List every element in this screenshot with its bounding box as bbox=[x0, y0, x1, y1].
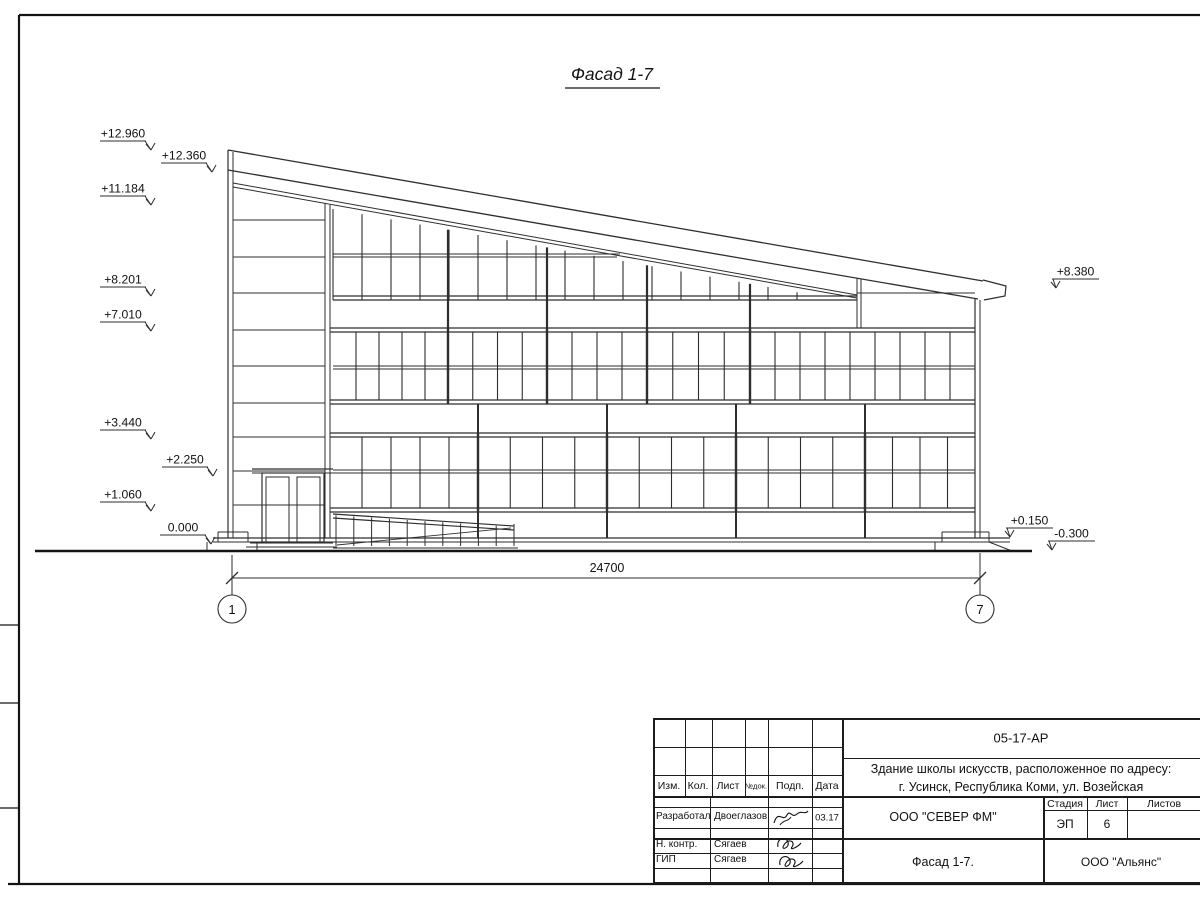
stage-value: ЭП bbox=[1056, 817, 1073, 831]
line bbox=[228, 150, 983, 281]
axis-label: 7 bbox=[976, 602, 983, 617]
name-developer: Двоеглазов bbox=[714, 811, 767, 822]
elevation-arrow bbox=[151, 198, 155, 205]
rev-col-data: Дата bbox=[815, 780, 838, 792]
elevation-value: 0.000 bbox=[168, 521, 199, 535]
axis-label: 1 bbox=[228, 602, 235, 617]
project-description-1: Здание школы искусств, расположенное по … bbox=[871, 762, 1172, 776]
stamp-line bbox=[768, 718, 769, 884]
stamp-line bbox=[712, 718, 713, 796]
elevation-arrow bbox=[151, 143, 155, 150]
company-name: ООО "СЕВЕР ФМ" bbox=[889, 810, 996, 824]
elevation-value: -0.300 bbox=[1054, 527, 1089, 541]
sheet-title: Фасад 1-7. bbox=[912, 855, 974, 869]
elevation-arrow bbox=[146, 505, 151, 511]
stamp-line bbox=[653, 853, 842, 854]
stamp-line bbox=[653, 718, 1200, 720]
elevation-value: +1.060 bbox=[104, 488, 142, 502]
dimension-value: 24700 bbox=[590, 561, 625, 575]
elevation-arrow bbox=[1052, 543, 1056, 550]
drawing-sheet: Фасад 1-7+12.960+12.360+11.184+8.201+7.0… bbox=[0, 0, 1200, 900]
elevation-arrow bbox=[1056, 281, 1060, 288]
elevation-value: +8.380 bbox=[1057, 265, 1095, 279]
role-gip: ГИП bbox=[656, 854, 676, 865]
elevation-arrow bbox=[1010, 530, 1014, 537]
elevation-value: +12.960 bbox=[101, 127, 146, 141]
elevation-value: +3.440 bbox=[104, 416, 142, 430]
elevation-arrow bbox=[207, 166, 212, 172]
footing bbox=[989, 542, 1012, 551]
role-developer: Разработал bbox=[656, 811, 710, 822]
project-description-2: г. Усинск, Республика Коми, ул. Возейска… bbox=[899, 780, 1143, 794]
stamp-line bbox=[653, 718, 655, 884]
rev-col-doc: №док. bbox=[745, 782, 767, 791]
name-gip: Сягаев bbox=[714, 854, 747, 865]
elevation-arrow bbox=[146, 290, 151, 296]
elevation-arrow bbox=[208, 470, 213, 476]
elevation-arrow bbox=[151, 504, 155, 511]
door-leaf bbox=[297, 477, 320, 542]
line bbox=[233, 183, 857, 295]
contractor-name: ООО "Альянс" bbox=[1081, 855, 1161, 869]
sheet-label: Лист bbox=[1096, 798, 1119, 810]
elevation-arrow bbox=[146, 325, 151, 331]
rev-col-list: Лист bbox=[717, 780, 740, 792]
stage-label: Стадия bbox=[1047, 798, 1083, 810]
stamp-line bbox=[1087, 796, 1088, 840]
stamp-line bbox=[1127, 796, 1128, 840]
stamp-line bbox=[812, 718, 813, 884]
elevation-arrow bbox=[146, 433, 151, 439]
name-ncontrol: Сягаев bbox=[714, 839, 747, 850]
elevation-arrow bbox=[146, 144, 151, 150]
door-leaf bbox=[266, 477, 289, 542]
stamp-line bbox=[685, 718, 686, 796]
rev-col-podp: Подп. bbox=[776, 780, 804, 792]
stamp-line bbox=[653, 868, 842, 869]
stamp-line bbox=[842, 758, 1200, 759]
elevation-arrow bbox=[151, 289, 155, 296]
stamp-line bbox=[653, 828, 842, 829]
elevation-value: +2.250 bbox=[166, 453, 204, 467]
title-block: Изм. Кол. Лист №док. Подп. Дата 05-17-АР… bbox=[653, 718, 1200, 884]
sheet-value: 6 bbox=[1104, 817, 1111, 831]
elevation-value: +12.360 bbox=[162, 149, 207, 163]
signature-ncontrol-gip bbox=[770, 833, 811, 873]
elevation-arrow bbox=[213, 469, 217, 476]
elevation-arrow bbox=[151, 432, 155, 439]
elevation-value: +8.201 bbox=[104, 273, 142, 287]
gutter bbox=[983, 280, 1006, 300]
stamp-line bbox=[653, 775, 842, 776]
stamp-line bbox=[710, 796, 711, 884]
stamp-line bbox=[653, 882, 1200, 884]
elevation-value: +11.184 bbox=[101, 182, 145, 196]
entrance-door bbox=[262, 473, 324, 542]
elevation-value: +0.150 bbox=[1011, 514, 1049, 528]
elevation-value: +7.010 bbox=[104, 308, 142, 322]
elevation-arrow bbox=[146, 199, 151, 205]
rev-col-kol: Кол. bbox=[688, 780, 709, 792]
line bbox=[228, 170, 978, 299]
stamp-line bbox=[842, 718, 844, 884]
stamp-line bbox=[653, 807, 842, 808]
date-developer: 03.17 bbox=[815, 813, 839, 824]
rev-col-izm: Изм. bbox=[658, 780, 681, 792]
elevation-arrow bbox=[151, 324, 155, 331]
sheets-label: Листов bbox=[1147, 798, 1181, 810]
elevation-arrow bbox=[212, 165, 216, 172]
signature-developer bbox=[770, 803, 811, 828]
role-ncontrol: Н. контр. bbox=[656, 839, 697, 850]
stamp-line bbox=[653, 747, 842, 748]
view-title: Фасад 1-7 bbox=[571, 64, 654, 84]
stamp-line bbox=[1043, 810, 1200, 811]
doc-number: 05-17-АР bbox=[994, 731, 1049, 746]
